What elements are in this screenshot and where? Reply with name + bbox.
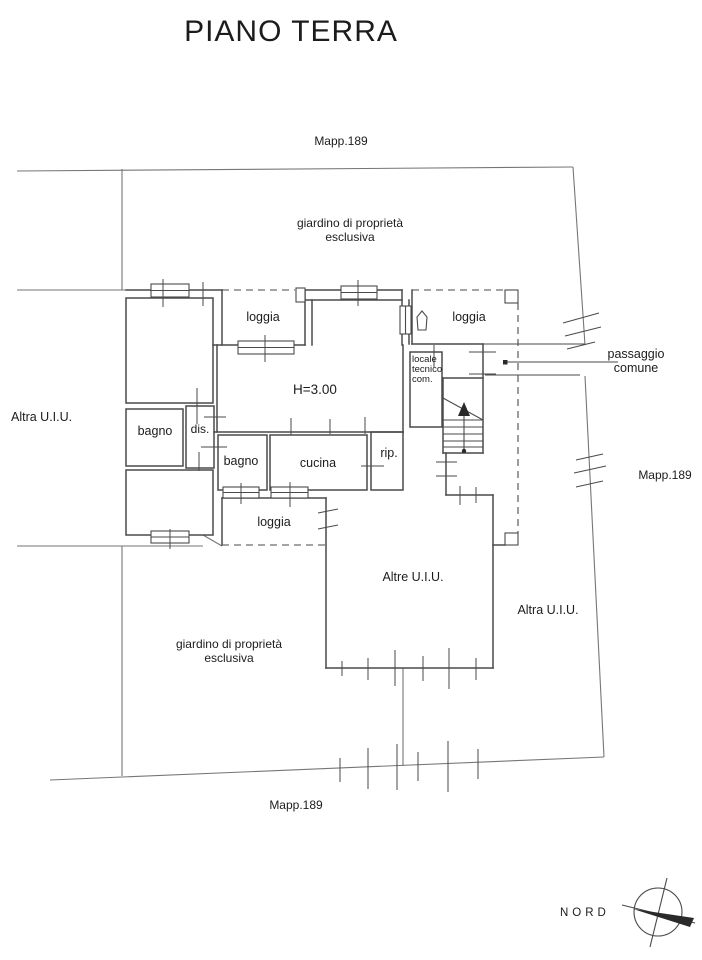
room-label-dis: dis. bbox=[191, 422, 210, 436]
floor-plan-canvas: NORD PIANO TERRA Mapp.189 Mapp.189 Mapp.… bbox=[0, 0, 702, 960]
compass: NORD bbox=[560, 878, 695, 947]
window-symbols bbox=[151, 284, 427, 543]
parcel-label-right: Mapp.189 bbox=[638, 468, 692, 482]
compass-circle bbox=[634, 888, 682, 936]
floor-plan-page: NORD PIANO TERRA Mapp.189 Mapp.189 Mapp.… bbox=[0, 0, 702, 960]
page-title: PIANO TERRA bbox=[184, 15, 398, 48]
room-label-rip: rip. bbox=[380, 446, 397, 460]
parcel-label-bottom: Mapp.189 bbox=[269, 798, 323, 812]
stair-direction-arrow bbox=[458, 402, 470, 416]
room-label-bagno-inner: bagno bbox=[224, 454, 259, 468]
door-symbol bbox=[417, 311, 427, 330]
parcel-label-top: Mapp.189 bbox=[314, 134, 368, 148]
garden-bottom-label-line2: esclusiva bbox=[204, 651, 254, 665]
garden-bottom-label-line1: giardino di proprietà bbox=[176, 637, 282, 651]
dashed-open-edges bbox=[222, 290, 518, 545]
other-unit-right-label: Altra U.I.U. bbox=[517, 603, 578, 617]
room-label-bagno-left: bagno bbox=[138, 424, 173, 438]
room-label-loggia-bottom: loggia bbox=[257, 515, 290, 529]
passage-leader bbox=[503, 360, 618, 365]
room-label-locale-line3: com. bbox=[412, 374, 433, 385]
room-label-cucina: cucina bbox=[300, 456, 336, 470]
height-annotation: H=3.00 bbox=[293, 382, 337, 397]
passage-label-line1: passaggio bbox=[608, 347, 665, 361]
other-unit-left-label: Altra U.I.U. bbox=[11, 410, 72, 424]
north-arrow-icon bbox=[633, 909, 694, 927]
lot-boundary-lines bbox=[17, 167, 604, 780]
garden-top-label-line2: esclusiva bbox=[325, 230, 375, 244]
room-label-loggia-top-right: loggia bbox=[452, 310, 485, 324]
other-units-center-label: Altre U.I.U. bbox=[382, 570, 443, 584]
stairs bbox=[443, 398, 483, 453]
compass-label: NORD bbox=[560, 907, 610, 919]
room-label-loggia-top-left: loggia bbox=[246, 310, 279, 324]
passage-label-line2: comune bbox=[614, 361, 659, 375]
tick-marks bbox=[163, 279, 606, 792]
building-walls bbox=[126, 288, 585, 668]
garden-top-label-line1: giardino di proprietà bbox=[297, 216, 403, 230]
